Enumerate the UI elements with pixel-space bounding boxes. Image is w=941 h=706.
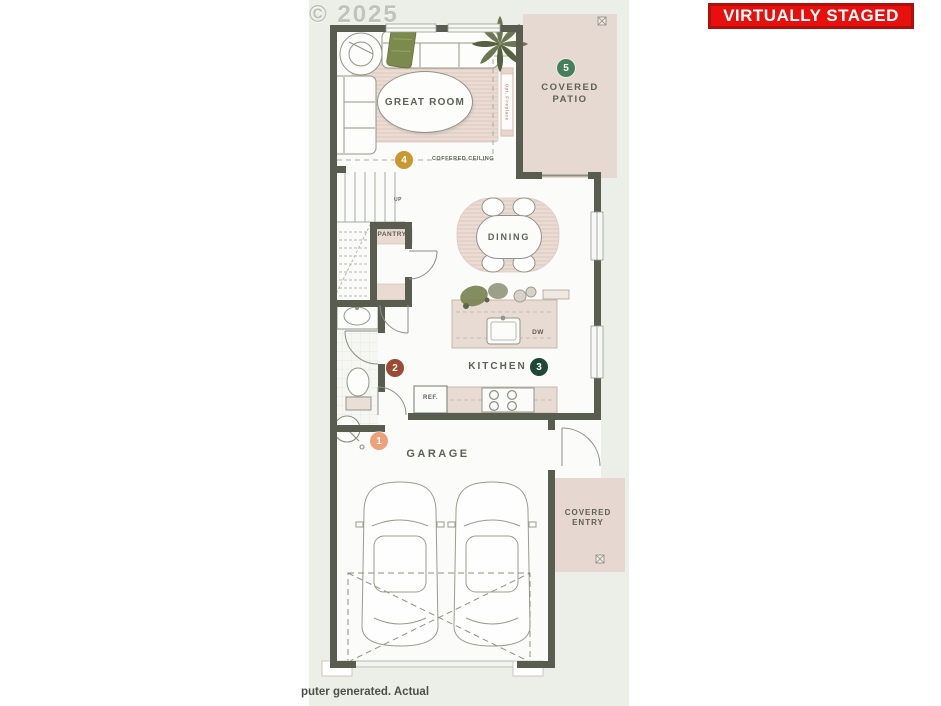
marker-2-powder-room: 2: [386, 359, 404, 377]
dining-table: DINING: [476, 215, 542, 259]
garage-label: GARAGE: [388, 448, 488, 462]
range-counter: [447, 387, 557, 413]
marker-4-great-room: 4: [395, 151, 413, 169]
floorplan-page: © 2025 VIRTUALLY STAGED GREAT ROOM COVER…: [0, 0, 941, 706]
up-label: UP: [391, 197, 405, 203]
sofa-left: [332, 76, 376, 154]
covered-patio-label: COVERED PATIO: [523, 82, 617, 106]
pantry-label: PANTRY: [370, 231, 414, 239]
coffered-ceiling-label: COFFERED CEILING: [425, 156, 501, 163]
faucet: [501, 316, 506, 321]
utility-box-icon-entry: [596, 555, 604, 563]
marker-1-garage: 1: [370, 432, 388, 450]
marker-3-kitchen: 3: [530, 358, 548, 376]
great-room-label: GREAT ROOM: [377, 71, 473, 133]
copyright-watermark: © 2025: [309, 1, 399, 29]
dw-label: DW: [526, 329, 550, 337]
opt-fireplace-label: Opt. Fireplace: [505, 83, 510, 120]
disclaimer-text: puter generated. Actual: [301, 686, 429, 698]
ref-label: REF.: [414, 395, 447, 403]
round-chair: [340, 33, 382, 75]
marker-5-covered-patio: 5: [557, 59, 575, 77]
car-right: [448, 482, 536, 646]
utility-box-icon-patio: [598, 17, 606, 25]
covered-entry-label: COVERED ENTRY: [555, 508, 621, 528]
green-throw: [386, 27, 416, 69]
virtually-staged-banner: VIRTUALLY STAGED: [708, 3, 914, 29]
toilet: [346, 368, 371, 410]
